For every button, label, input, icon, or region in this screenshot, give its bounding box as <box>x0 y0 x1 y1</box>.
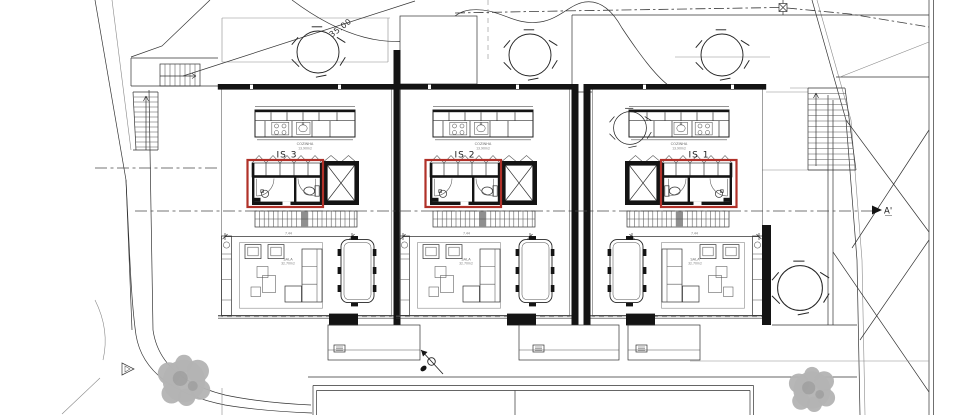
section-marker-label: A' <box>884 207 892 217</box>
tree-canopy <box>789 367 835 412</box>
living-area-label: 32.70m2 <box>281 262 295 266</box>
hatched-roof <box>394 16 478 84</box>
tree-canopy <box>158 355 211 406</box>
tree-icon <box>696 30 750 80</box>
property-line <box>455 0 929 27</box>
width-dim-label: 7.44 <box>463 232 470 236</box>
plan-drawing: 35.00 COZINHA 13.9 <box>0 0 960 415</box>
slope-arrow-icon <box>419 350 443 374</box>
dimension-35: 35.00 <box>183 1 415 76</box>
kitchen-label: COZINHA <box>671 142 688 146</box>
unit-house-2 <box>396 84 579 325</box>
bathroom-label: IS 2 <box>455 151 476 161</box>
road-arrow-icon <box>122 363 134 375</box>
road <box>122 90 312 415</box>
width-dim-label: 7.44 <box>691 232 698 236</box>
living-area-label: 32.70m2 <box>688 262 702 266</box>
kitchen-label: COZINHA <box>475 142 492 146</box>
bathroom-label: IS 3 <box>277 151 298 161</box>
living-area-label: 32.70m2 <box>459 262 473 266</box>
planter-icon <box>636 345 647 352</box>
unit-house-1-side-wall <box>762 225 771 325</box>
pool <box>313 386 754 415</box>
planter-icon <box>334 345 345 352</box>
kitchen-area-label: 13.90m2 <box>298 147 312 151</box>
kitchen-area-label: 13.90m2 <box>672 147 686 151</box>
exterior-stair-left <box>160 64 200 86</box>
section-marker-a-prime: A' <box>872 206 892 217</box>
deck-lines <box>308 361 929 377</box>
site-plan: 35.00 COZINHA 13.9 <box>0 0 960 415</box>
planter-icon <box>533 345 544 352</box>
tree-icon <box>772 261 829 315</box>
width-dim-label: 7.44 <box>285 232 292 236</box>
boundary-marker-icon <box>779 0 787 15</box>
entry-steps <box>328 325 700 360</box>
tree-icon <box>610 108 652 147</box>
unit-house-3 <box>218 84 401 325</box>
bathroom-label: IS 1 <box>689 151 710 161</box>
kitchen-area-label: 13.90m2 <box>476 147 490 151</box>
tree-icon <box>504 30 558 80</box>
kitchen-label: COZINHA <box>297 142 314 146</box>
exterior-stair-side <box>133 92 158 150</box>
